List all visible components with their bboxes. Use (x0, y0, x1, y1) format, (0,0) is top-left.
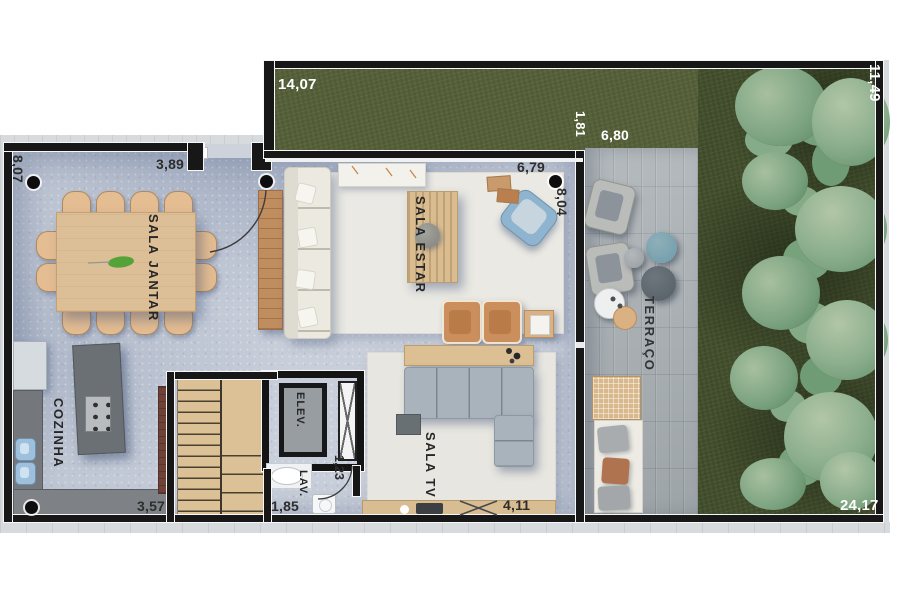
tv-sectional-sofa (494, 415, 534, 467)
dining-chair (62, 310, 91, 335)
floor-plan: 14,07 11,49 1,81 6,80 6,79 8,04 8,07 3,8… (0, 0, 900, 594)
room-label-lavabo: LAV. (297, 470, 309, 497)
dining-chair (193, 231, 217, 260)
outdoor-pouf (624, 248, 644, 268)
wall-stair-hall (166, 371, 278, 380)
column-marker (260, 175, 273, 188)
dining-chair (193, 263, 217, 292)
wall-lot-right (875, 60, 884, 523)
staircase (177, 379, 264, 516)
room-label-cozinha: COZINHA (51, 398, 66, 468)
sofa-pillow (296, 306, 319, 329)
entry-door-jamb (187, 142, 204, 171)
dim-kitchen-width: 3,57 (137, 498, 165, 514)
wall-lot-top (265, 60, 884, 69)
dining-chair (164, 310, 193, 335)
sidewalk-bottom (0, 522, 890, 533)
elevator-counterweight-shaft (338, 381, 357, 461)
column-marker (27, 176, 40, 189)
sofa-pillow (295, 269, 316, 290)
dim-living-depth: 8,04 (554, 188, 570, 216)
living-console (404, 345, 534, 366)
dim-lot-width: 24,17 (840, 497, 879, 514)
tree (795, 186, 887, 272)
room-label-terraco: TERRAÇO (642, 296, 657, 371)
dim-dining-width: 3,89 (156, 156, 184, 172)
side-table (524, 310, 554, 338)
dim-lav-width: 1,85 (271, 498, 299, 514)
wall-lav-right (352, 465, 361, 497)
dim-tv-width: 4,11 (503, 497, 530, 513)
tan-armchair (442, 300, 482, 344)
tree (742, 256, 820, 330)
wall-lav-left (263, 468, 272, 523)
column-marker (25, 501, 38, 514)
ottoman (396, 414, 421, 435)
column-marker (549, 175, 562, 188)
stair-flight-left (178, 380, 222, 515)
sofa-pillow (296, 226, 318, 248)
stair-flight-right (222, 380, 263, 515)
room-label-sala-tv: SALA TV (423, 432, 438, 498)
side-table-small (496, 188, 519, 204)
tree (740, 458, 806, 510)
daybed-pillow (597, 425, 630, 454)
tv-sectional-sofa (404, 367, 534, 419)
room-label-sala-estar: SALA ESTAR (413, 196, 428, 294)
kitchen-sink (15, 438, 36, 461)
wall-lot-bottom (3, 514, 884, 523)
door-notch (576, 342, 584, 348)
wall-garden-left (263, 60, 275, 155)
wall-terrace-divider (575, 150, 585, 523)
television (416, 503, 443, 514)
dim-garden-top: 14,07 (278, 76, 317, 93)
cooktop (85, 396, 111, 432)
daybed-pillow (601, 457, 630, 485)
dim-garden-strip: 1,81 (573, 111, 588, 137)
dim-garden-right: 11,49 (866, 64, 883, 102)
wall-stair-left (166, 371, 175, 523)
sideboard (258, 190, 283, 330)
outdoor-pouf (646, 232, 677, 263)
wall-dining-top (3, 142, 205, 152)
dim-dining-depth: 8,07 (10, 155, 26, 183)
kitchen-sink (15, 462, 36, 485)
dining-chair (96, 310, 125, 335)
outdoor-table (613, 306, 637, 330)
tree (730, 346, 798, 410)
daybed-pillow (597, 485, 630, 511)
dim-lav-depth: 1,23 (332, 455, 346, 480)
daybed-back (592, 376, 641, 420)
wall-lot-left (3, 142, 13, 523)
dim-living-width: 6,79 (517, 159, 545, 175)
dining-table (56, 212, 196, 312)
toilet (312, 494, 336, 514)
tree (742, 152, 808, 210)
refrigerator (13, 341, 47, 390)
dim-deck-width: 6,80 (601, 127, 629, 143)
tan-armchair (482, 300, 522, 344)
room-label-elevador: ELEV. (294, 392, 306, 428)
room-label-sala-jantar: SALA JANTAR (146, 214, 161, 322)
window-bench (338, 163, 426, 187)
decor-dot (400, 505, 409, 514)
